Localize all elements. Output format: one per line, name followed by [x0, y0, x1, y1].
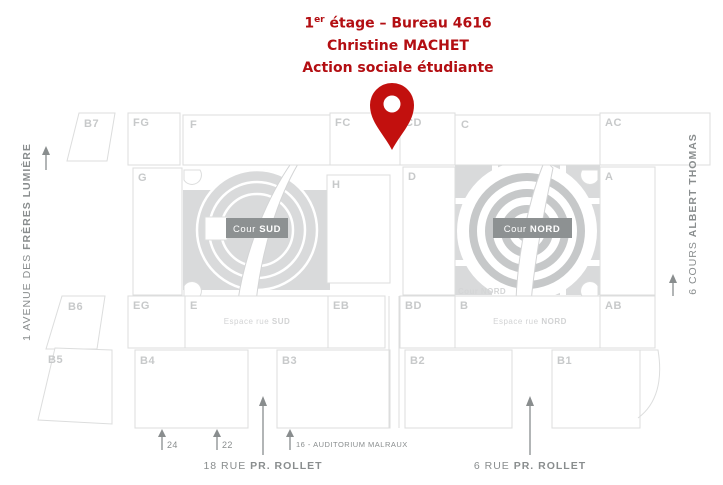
rue-18-regular: 18 RUE [203, 460, 250, 472]
block-h-label: H [332, 179, 341, 191]
cour-nord-bold: NORD [530, 224, 560, 235]
block-b1-label: B1 [557, 355, 572, 367]
street-left-label: 1 AVENUE DES FRÈRES LUMIÈRE [20, 143, 33, 341]
block-g [133, 168, 182, 295]
cour-nord-small-bold: NORD [481, 287, 506, 296]
block-a-label: A [605, 171, 614, 183]
courtyard-sud-tab [205, 217, 227, 240]
block-c-label: C [461, 119, 470, 131]
entrance-16-arrowhead [286, 429, 294, 437]
block-b4-label: B4 [140, 355, 156, 367]
rue-6-bold: PR. ROLLET [514, 460, 586, 472]
pin-hole [384, 96, 401, 113]
rue-6-regular: 6 RUE [474, 460, 514, 472]
courtyard-notch [184, 170, 201, 184]
block-d-label: D [408, 171, 417, 183]
block-b6-label: B6 [68, 301, 83, 313]
rue-18-arrowhead [259, 396, 267, 406]
rue-6-arrowhead [526, 396, 534, 406]
block-b7-label: B7 [84, 118, 99, 130]
block-h [327, 175, 390, 283]
street-right-bold: ALBERT THOMAS [687, 133, 699, 237]
block-b1-curved-wall [638, 350, 660, 418]
entrance-22: 22 [213, 429, 233, 450]
cour-sud-regular: Cour [233, 224, 259, 235]
block-eg-label: EG [133, 300, 150, 312]
block-b-label: B [460, 300, 469, 312]
entrance-16-label: 16 - AUDITORIUM MALRAUX [296, 440, 408, 449]
block-g-label: G [138, 172, 147, 184]
cour-nord-badge-label: Cour NORD [504, 224, 561, 235]
entrance-22-arrowhead [213, 429, 221, 437]
cour-nord-small-regular: Cour [458, 287, 481, 296]
block-fg-label: FG [133, 117, 149, 129]
block-fc-label: FC [335, 117, 351, 129]
street-right-label: 6 COURS ALBERT THOMAS [687, 133, 699, 295]
block-f [183, 115, 330, 165]
street-left-arrowhead [42, 146, 50, 155]
street-left-bold: FRÈRES LUMIÈRE [20, 143, 33, 250]
entrance-24-label: 24 [167, 440, 178, 450]
block-e-label: E [190, 300, 198, 312]
cour-sud-bold: SUD [259, 224, 281, 235]
block-ab-label: AB [605, 300, 622, 312]
block-ac-label: AC [605, 117, 622, 129]
entrance-22-label: 22 [222, 440, 233, 450]
block-bd-label: BD [405, 300, 422, 312]
street-avenue-freres-lumiere: 1 AVENUE DES FRÈRES LUMIÈRE [20, 143, 50, 341]
espace-nord-bold: NORD [541, 317, 567, 326]
block-b2-label: B2 [410, 355, 425, 367]
entrance-24: 24 [158, 429, 178, 450]
block-eb-label: EB [333, 300, 349, 312]
cour-nord-small-label: Cour NORD [458, 287, 506, 296]
espace-rue-nord-label: Espace rue NORD [493, 317, 567, 326]
block-b3-label: B3 [282, 355, 297, 367]
espace-sud-bold: SUD [272, 317, 290, 326]
street-right-arrowhead [669, 274, 677, 283]
block-d [403, 167, 455, 295]
block-a [600, 167, 655, 295]
block-b5-label: B5 [48, 354, 63, 366]
entrance-24-arrowhead [158, 429, 166, 437]
entrance-16-auditorium: 16 - AUDITORIUM MALRAUX [286, 429, 408, 450]
espace-rue-sud-label: Espace rue SUD [224, 317, 291, 326]
campus-map: B7 FG F FC CD C AC G H D A B6 EG E Espac… [0, 0, 723, 485]
cour-sud-badge-label: Cour SUD [233, 224, 281, 235]
street-left-regular: 1 AVENUE DES [21, 250, 33, 341]
rue-18-bold: PR. ROLLET [250, 460, 322, 472]
block-f-label: F [190, 119, 197, 131]
espace-nord-regular: Espace rue [493, 317, 541, 326]
rue-18-label: 18 RUE PR. ROLLET [203, 460, 322, 472]
block-c [455, 115, 600, 165]
rue-6-label: 6 RUE PR. ROLLET [474, 460, 586, 472]
espace-sud-regular: Espace rue [224, 317, 272, 326]
cour-nord-regular: Cour [504, 224, 530, 235]
street-right-regular: 6 COURS [687, 237, 699, 295]
